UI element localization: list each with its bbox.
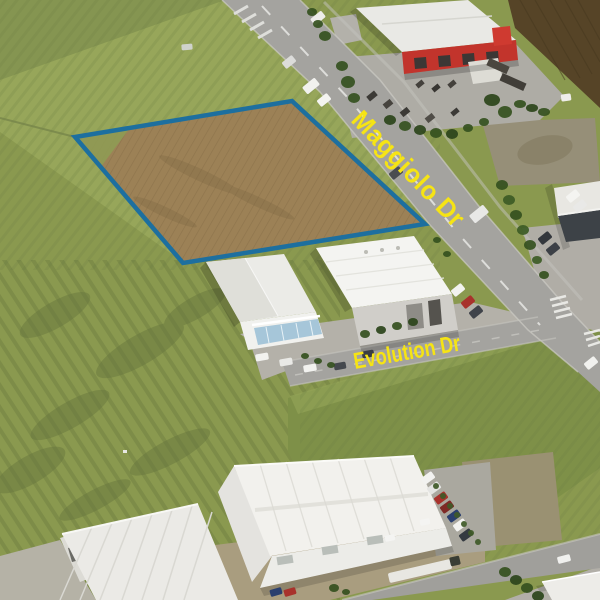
tree	[348, 93, 360, 103]
tree	[336, 61, 348, 71]
field-speck	[123, 450, 127, 453]
tree	[342, 589, 350, 595]
hedge	[538, 108, 550, 116]
tree	[376, 326, 386, 334]
tree	[517, 225, 529, 235]
brand-sign	[492, 26, 512, 46]
tree	[446, 129, 458, 139]
tree	[319, 31, 331, 41]
hedge	[526, 104, 538, 112]
tree	[414, 125, 426, 135]
roller-door	[406, 303, 424, 330]
hedge	[468, 530, 474, 536]
tree	[399, 121, 411, 131]
tree	[524, 240, 536, 250]
tree	[313, 20, 323, 28]
tree	[498, 106, 512, 118]
hedge	[314, 358, 322, 364]
car-in-field	[181, 44, 192, 51]
tree	[329, 584, 339, 592]
door-opening	[428, 299, 442, 326]
hedge	[475, 539, 481, 545]
tree	[510, 210, 522, 220]
tree	[484, 94, 500, 106]
hedge	[301, 353, 309, 359]
tree	[496, 180, 508, 190]
aerial-photo: Maggiolo Dr Evolution Dr	[0, 0, 600, 600]
hedge	[510, 575, 522, 585]
hedge	[433, 483, 439, 489]
tree	[360, 330, 370, 338]
tree	[443, 251, 451, 257]
tree	[341, 76, 355, 88]
tree	[433, 237, 441, 243]
tree	[503, 195, 515, 205]
tree	[430, 128, 442, 138]
hedge	[440, 493, 446, 499]
hedge	[514, 100, 526, 108]
hedge	[454, 512, 460, 518]
tree	[479, 118, 489, 126]
tree	[392, 322, 402, 330]
hedge	[499, 567, 511, 577]
aerial-photo-canvas: Maggiolo Dr Evolution Dr	[0, 0, 600, 600]
hedge	[327, 362, 335, 368]
hedge	[521, 583, 533, 593]
tree	[463, 124, 473, 132]
tree	[307, 8, 317, 16]
tree	[539, 271, 549, 279]
tree	[532, 256, 542, 264]
tree	[408, 318, 418, 326]
hedge	[447, 503, 453, 509]
caravan	[561, 93, 572, 101]
hedge	[461, 521, 467, 527]
